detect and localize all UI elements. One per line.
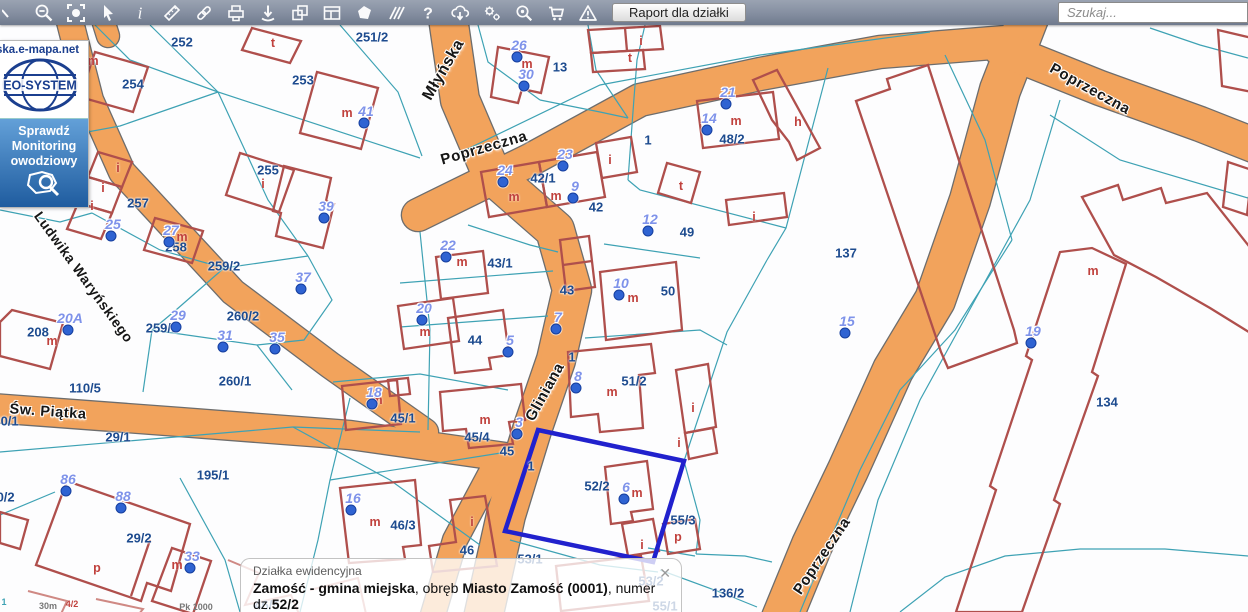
popup-text-segment: 52/2 [272,596,299,612]
popup-text-segment: Miasto Zamość (0001) [462,580,608,596]
layout-icon[interactable] [322,3,342,23]
search-input[interactable] [1058,2,1248,23]
poi-marker-dot[interactable] [558,161,569,172]
pointer-icon[interactable] [98,3,118,23]
search-plus-icon[interactable] [514,3,534,23]
poi-marker-dot[interactable] [116,503,127,514]
poi-marker-dot[interactable] [171,322,182,333]
warning-icon[interactable] [578,3,598,23]
poi-marker-dot[interactable] [63,325,74,336]
parcel-info-popup: Działka ewidencyjna Zamość - gmina miejs… [240,558,682,612]
poi-marker-dot[interactable] [319,213,330,224]
gis-viewer: MłyńskaPoprzecznaPoprzecznaPoprzecznaGli… [0,0,1248,612]
popup-text-segment: , obręb [415,580,462,596]
poi-marker-dot[interactable] [164,237,175,248]
popup-parcel-line: Zamość - gmina miejska, obręb Miasto Zam… [253,580,669,612]
parcel-report-button[interactable]: Raport dla działki [612,3,746,22]
measure-icon[interactable] [162,3,182,23]
cart-icon[interactable] [546,3,566,23]
poi-marker-dot[interactable] [106,231,117,242]
poi-marker-dot[interactable] [296,284,307,295]
poi-marker-dot[interactable] [441,252,452,263]
poi-marker-dot[interactable] [551,324,562,335]
toolbar: i? Raport dla działki [0,0,1248,25]
popup-title: Działka ewidencyjna [253,564,669,578]
settings-icon[interactable] [482,3,502,23]
popup-text-segment: Zamość - gmina miejska [253,580,415,596]
map-vector-layer [0,0,1248,612]
site-name: ska.e-mapa.net [0,44,88,56]
poi-marker-dot[interactable] [503,347,514,358]
close-icon[interactable]: ✕ [659,565,671,582]
info-icon[interactable]: i [130,3,150,23]
map-viewport[interactable]: MłyńskaPoprzecznaPoprzecznaPoprzecznaGli… [0,0,1248,612]
poi-marker-dot[interactable] [185,563,196,574]
svg-text:?: ? [423,5,433,22]
poi-marker-dot[interactable] [61,486,72,497]
banner-line: Monitoring [0,139,88,154]
poi-marker-dot[interactable] [519,81,530,92]
toolbar-icons: i? [0,3,598,23]
poi-marker-dot[interactable] [417,315,428,326]
polygon-icon[interactable] [354,3,374,23]
help-icon[interactable]: ? [418,3,438,23]
banner-line: Sprawdź [0,124,88,139]
hatch-icon[interactable] [386,3,406,23]
poi-marker-dot[interactable] [571,383,582,394]
print-icon[interactable] [226,3,246,23]
poi-marker-dot[interactable] [568,193,579,204]
download-point-icon[interactable] [258,3,278,23]
poi-marker-dot[interactable] [702,125,713,136]
poi-marker-dot[interactable] [218,342,229,353]
banner-line: owodziowy [0,154,88,169]
geo-system-logo-icon: EO-SYSTEM [0,57,86,113]
poi-marker-dot[interactable] [346,505,357,516]
cloud-download-icon[interactable] [450,3,470,23]
brand-text: EO-SYSTEM [3,79,77,93]
poi-marker-dot[interactable] [270,344,281,355]
poi-marker-dot[interactable] [619,494,630,505]
poi-marker-dot[interactable] [512,52,523,63]
copy-icon[interactable] [290,3,310,23]
poi-marker-dot[interactable] [721,99,732,110]
poi-marker-dot[interactable] [614,290,625,301]
full-extent-icon[interactable] [66,3,86,23]
zoom-out-icon[interactable] [34,3,54,23]
poi-marker-dot[interactable] [643,226,654,237]
poi-marker-dot[interactable] [498,177,509,188]
poi-marker-dot[interactable] [359,118,370,129]
logo-panel: ska.e-mapa.net EO-SYSTEM Sprawdź Monitor… [0,40,89,208]
poi-marker-dot[interactable] [1026,338,1037,349]
zoom-in-partial-icon[interactable] [2,3,22,23]
svg-text:i: i [138,3,143,22]
poi-marker-dot[interactable] [840,328,851,339]
flood-monitoring-banner[interactable]: Sprawdź Monitoring owodziowy [0,118,88,207]
poland-magnifier-icon [22,169,66,199]
poi-marker-dot[interactable] [512,429,523,440]
poi-marker-dot[interactable] [367,399,378,410]
link-icon[interactable] [194,3,214,23]
